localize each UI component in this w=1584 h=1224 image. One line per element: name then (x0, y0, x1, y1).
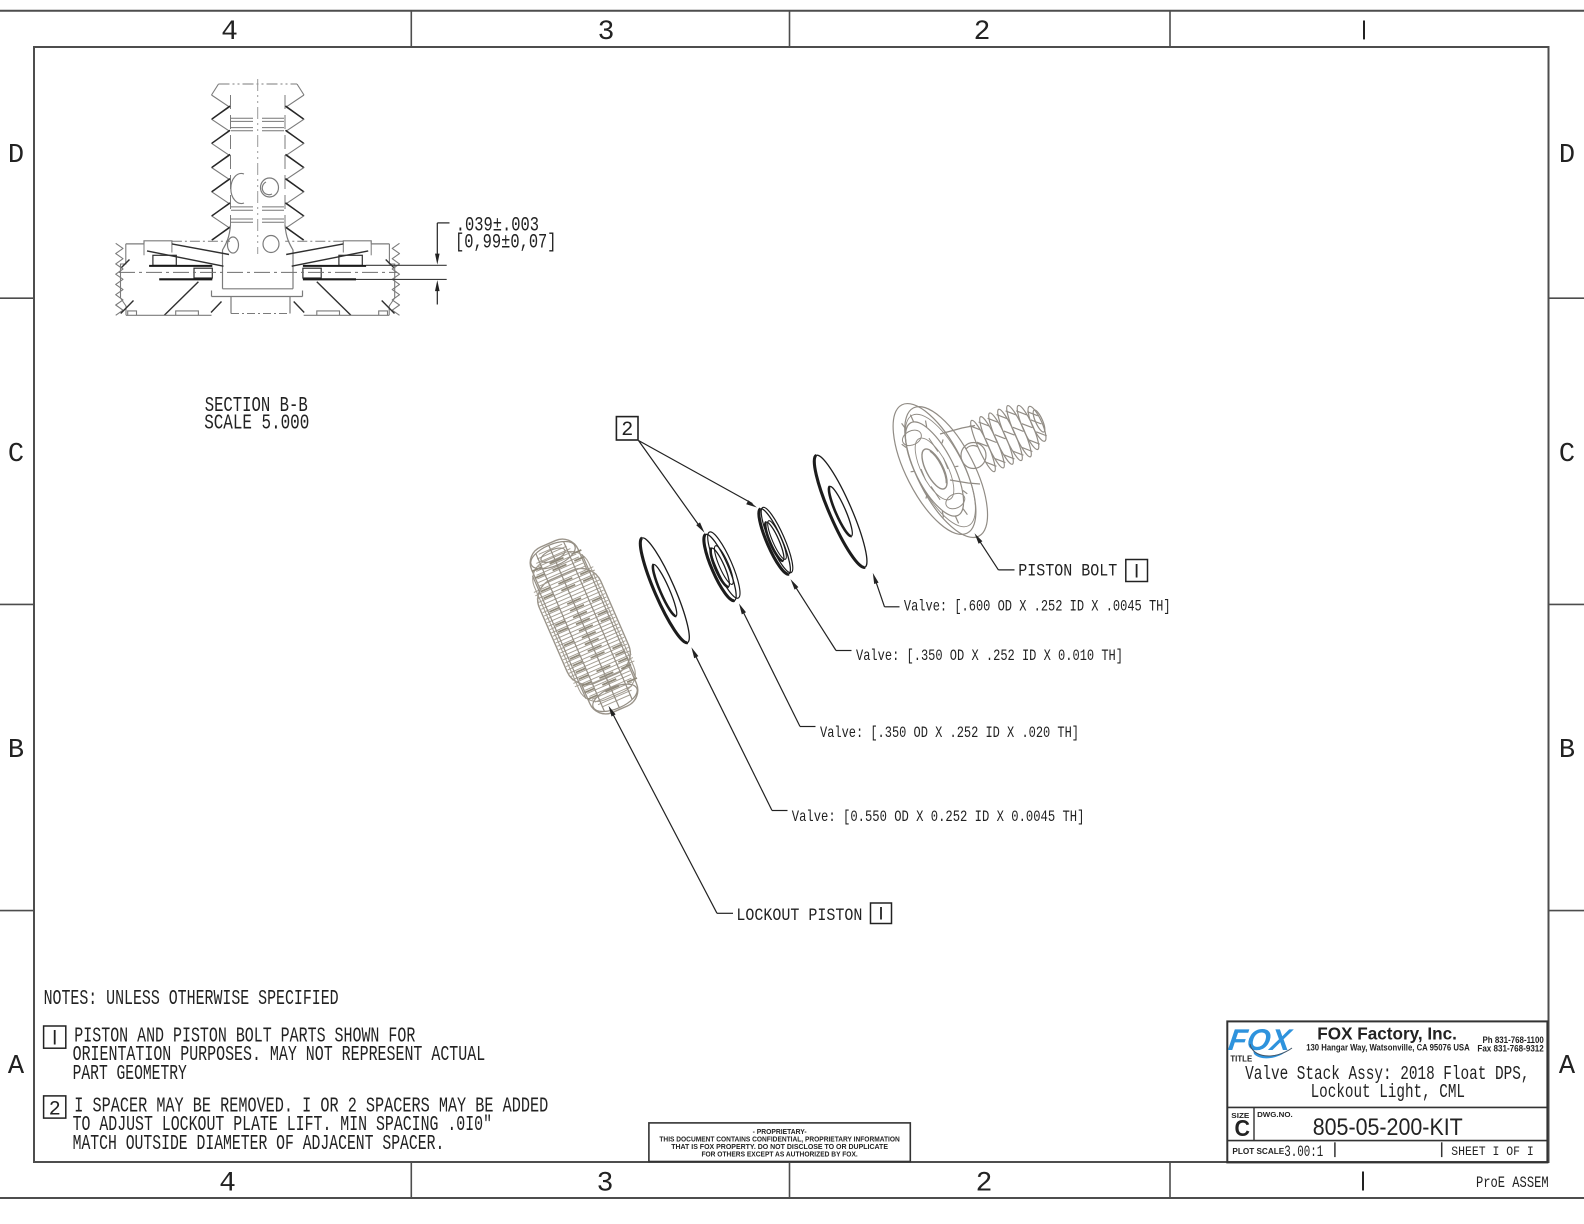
svg-text:Fax 831-768-9312: Fax 831-768-9312 (1477, 1044, 1543, 1054)
svg-text:3: 3 (598, 17, 615, 48)
svg-text:Lockout Light, CML: Lockout Light, CML (1311, 1081, 1465, 1103)
svg-text:2: 2 (621, 419, 633, 442)
svg-text:2: 2 (976, 1169, 993, 1200)
svg-text:PART GEOMETRY: PART GEOMETRY (73, 1063, 187, 1086)
svg-text:SCALE 5.000: SCALE 5.000 (204, 412, 309, 435)
svg-text:PISTON BOLT: PISTON BOLT (1018, 561, 1117, 581)
svg-text:C: C (1235, 1115, 1251, 1141)
svg-text:130 Hangar Way, Watsonville, C: 130 Hangar Way, Watsonville, CA 95076 US… (1306, 1043, 1470, 1054)
svg-text:C: C (8, 440, 24, 470)
svg-text:FOR OTHERS EXCEPT AS AUTHORIZE: FOR OTHERS EXCEPT AS AUTHORIZED BY FOX. (701, 1150, 857, 1159)
svg-text:Valve: [.600 OD X .252 ID X .0: Valve: [.600 OD X .252 ID X .0045 TH] (904, 597, 1171, 615)
svg-text:MATCH OUTSIDE DIAMETER OF ADJA: MATCH OUTSIDE DIAMETER OF ADJACENT SPACE… (73, 1133, 445, 1156)
svg-text:[0,99±0,07]: [0,99±0,07] (455, 231, 557, 254)
svg-text:2: 2 (974, 17, 991, 48)
svg-text:ProE ASSEM: ProE ASSEM (1476, 1174, 1549, 1192)
svg-text:B: B (8, 736, 24, 766)
svg-text:A: A (1559, 1052, 1576, 1082)
svg-text:3.00:1: 3.00:1 (1284, 1143, 1323, 1161)
svg-text:SHEET I OF I: SHEET I OF I (1451, 1145, 1534, 1159)
svg-text:LOCKOUT PISTON: LOCKOUT PISTON (736, 906, 862, 926)
svg-text:805-05-200-KIT: 805-05-200-KIT (1313, 1114, 1463, 1141)
svg-text:Valve: [.350 OD X .252 ID X 0.: Valve: [.350 OD X .252 ID X 0.010 TH] (856, 647, 1123, 665)
svg-text:4: 4 (219, 1169, 236, 1200)
svg-text:4: 4 (221, 17, 238, 48)
svg-text:DWG.NO.: DWG.NO. (1257, 1110, 1293, 1119)
svg-text:PLOT SCALE: PLOT SCALE (1232, 1146, 1284, 1156)
svg-text:A: A (8, 1052, 25, 1082)
svg-text:Valve: [.350 OD X .252 ID X .0: Valve: [.350 OD X .252 ID X .020 TH] (820, 724, 1079, 742)
svg-text:D: D (8, 141, 24, 171)
svg-text:2: 2 (49, 1098, 61, 1121)
svg-text:B: B (1559, 736, 1575, 766)
svg-text:Valve: [0.550 OD X 0.252 ID X: Valve: [0.550 OD X 0.252 ID X 0.0045 TH] (792, 808, 1085, 826)
svg-text:FOX Factory, Inc.: FOX Factory, Inc. (1317, 1024, 1457, 1044)
svg-text:NOTES: UNLESS OTHERWISE SPECIF: NOTES: UNLESS OTHERWISE SPECIFIED (44, 988, 339, 1011)
svg-text:C: C (1559, 440, 1575, 470)
svg-text:D: D (1559, 141, 1575, 171)
svg-text:3: 3 (597, 1169, 614, 1200)
